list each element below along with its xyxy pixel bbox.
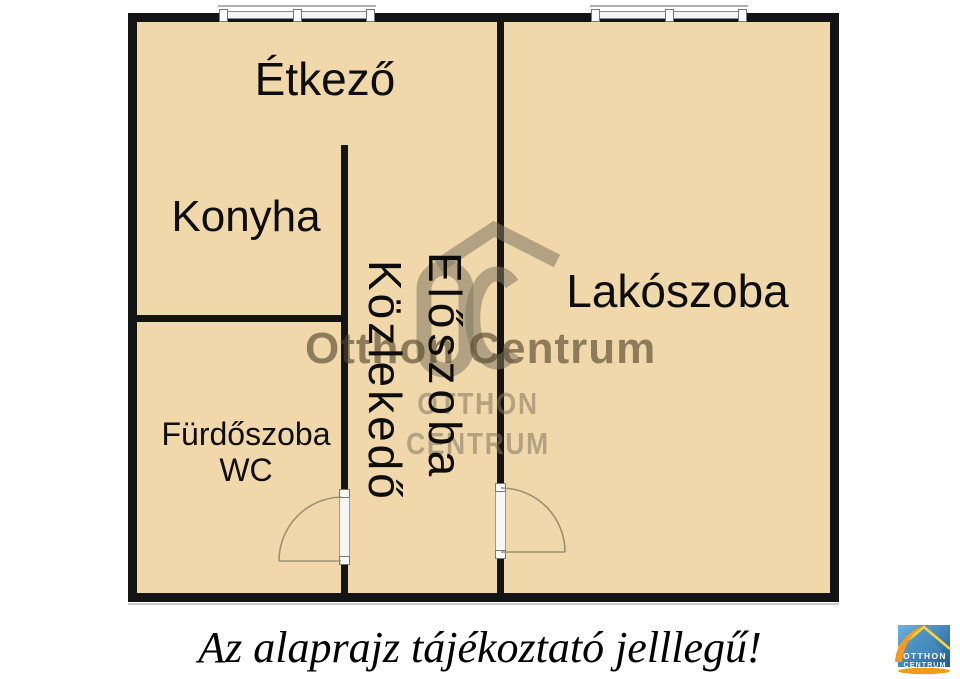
disclaimer-caption: Az alaprajz tájékoztató jelllegű! — [0, 622, 960, 673]
interior-wall-livingroom-lower — [497, 558, 504, 593]
door-jamb — [495, 483, 506, 492]
window-mullion — [665, 9, 674, 22]
door-jamb — [495, 550, 506, 559]
floorplan-page: Otthon Centrum OTTHON CENTRUM Étkező Kon… — [0, 0, 960, 679]
window-mullion — [591, 9, 600, 22]
door-jamb — [339, 556, 350, 565]
room-label-furdoszoba: Fürdőszoba WC — [156, 416, 336, 488]
otthon-centrum-logo: OTTHON CENTRUM — [893, 618, 955, 676]
wall-shadow-line — [128, 603, 839, 605]
door-livingroom — [495, 483, 506, 559]
room-label-furdoszoba-line2: WC — [156, 452, 336, 488]
room-label-konyha: Konyha — [155, 192, 337, 242]
room-label-kozlekedo: Közlekedő — [358, 260, 412, 502]
window-mullion — [738, 9, 747, 22]
room-label-eloszoba: Előszoba — [418, 252, 472, 481]
logo-centrum-text: CENTRUM — [904, 660, 947, 669]
window-mullion — [366, 9, 375, 22]
window-mullion — [293, 9, 302, 22]
outer-wall-bottom — [128, 593, 839, 602]
door-jamb — [339, 489, 350, 498]
interior-wall-corridor-upper — [341, 145, 348, 489]
room-label-etkezo: Étkező — [230, 52, 420, 106]
interior-wall-kitchen-bath — [137, 315, 341, 322]
door-bathroom — [339, 489, 350, 565]
interior-wall-corridor-lower — [341, 565, 348, 593]
window-sill-line — [218, 5, 376, 7]
room-label-lakoszoba: Lakószoba — [560, 264, 795, 318]
window-mullion — [219, 9, 228, 22]
outer-wall-left — [128, 13, 137, 602]
window-sill-line — [590, 5, 748, 7]
room-label-furdoszoba-line1: Fürdőszoba — [156, 416, 336, 452]
logo-bottom-swoosh-icon — [898, 668, 950, 674]
outer-wall-right — [830, 13, 839, 602]
